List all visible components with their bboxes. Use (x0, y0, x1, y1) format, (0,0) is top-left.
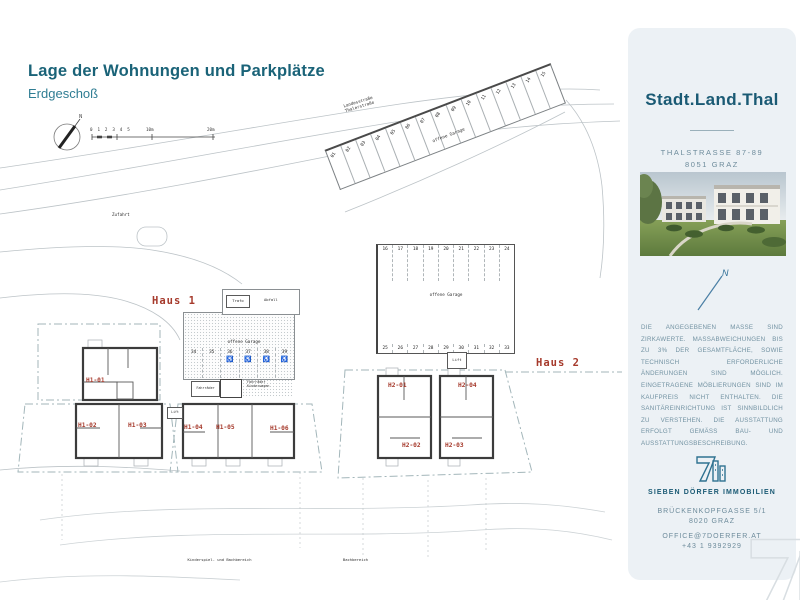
scale-10m: 10m (146, 127, 154, 132)
parking-stall: 18 (408, 245, 423, 281)
zufahrt-label: Zufahrt (112, 213, 130, 218)
parking-stall: 38 ♿ (258, 348, 276, 378)
prams-label: Kinderwagen (247, 385, 269, 389)
parking-stall: 20 (439, 245, 454, 281)
project-address-line2: 8051 GRAZ (628, 160, 796, 169)
unit-label: H1-02 (78, 422, 97, 429)
unit-label: H1-04 (184, 424, 203, 431)
stall-number: 16 (382, 245, 387, 281)
info-sidebar: Stadt.Land.Thal THALSTRASSE 87-89 8051 G… (628, 28, 796, 580)
abfall-label: Abfall (264, 298, 278, 302)
compass-north-label: N (79, 114, 82, 120)
disclaimer-text: DIE ANGEGEBENEN MASSE SIND ZIRKAWERTE. M… (641, 322, 783, 450)
parking-stall: 31 (469, 344, 484, 353)
stall-number: 01 (330, 152, 337, 159)
stall-number: 22 (474, 245, 479, 281)
stall-number: 02 (345, 146, 352, 153)
lift-box: Lift (447, 352, 467, 369)
stall-number: 09 (450, 106, 457, 113)
parcel-ties (62, 472, 486, 558)
stall-number: 21 (459, 245, 464, 281)
open-garage-label: offene Garage (378, 293, 514, 298)
parking-stall: 22 (469, 245, 484, 281)
parking-stall: 21 (454, 245, 469, 281)
wheelchair-icon: ♿ (226, 357, 233, 363)
stall-number: 10 (465, 100, 472, 107)
stall-number: 23 (489, 245, 494, 281)
stall-number: 36 (227, 348, 232, 355)
stall-number: 39 (282, 348, 287, 355)
wheelchair-icon: ♿ (281, 357, 288, 363)
terrain-lines (0, 503, 612, 582)
north-letter: N (722, 268, 729, 278)
parking-stall: 35 (203, 348, 221, 378)
stall-number: 19 (428, 245, 433, 281)
wheelchair-icon: ♿ (263, 357, 270, 363)
stall-number: 05 (390, 129, 397, 136)
project-address-line1: THALSTRASSE 87-89 (628, 148, 796, 157)
stall-number: 08 (435, 112, 442, 119)
parking-stall: 28 (424, 344, 439, 353)
parking-stall: 19 (424, 245, 439, 281)
company-name: SIEBEN DÖRFER IMMOBILIEN (628, 489, 796, 496)
company-logo-icon (694, 448, 730, 484)
stall-number: 11 (480, 94, 487, 101)
stall-number: 12 (495, 89, 502, 96)
unit-label: H1-06 (270, 425, 289, 432)
stall-number: 37 (245, 348, 250, 355)
building-render-image (640, 172, 786, 256)
watermark-logo-icon (742, 512, 800, 600)
stall-number: 28 (428, 344, 433, 353)
parking-stall: 27 (408, 344, 423, 353)
area-label-right: Bachbereich (328, 558, 383, 562)
unit-label: H1-05 (216, 424, 235, 431)
unit-label: H1-01 (86, 377, 105, 384)
page-title: Lage der Wohnungen und Parkplätze (28, 62, 325, 81)
stall-number: 06 (405, 123, 412, 130)
scale-20m: 20m (207, 127, 215, 132)
haus1-stall-row: 34 35 36 ♿ 37 ♿ 38 ♿ 39 ♿ (185, 348, 293, 378)
stall-number: 13 (510, 83, 517, 90)
scale-bar: 0 1 2 3 4 5 10m 20m (90, 127, 215, 140)
stall-number: 38 (264, 348, 269, 355)
scale-ticks: 0 1 2 3 4 5 (90, 127, 131, 132)
lift-box: Lift (167, 407, 183, 419)
unit-label: H2-02 (402, 442, 421, 449)
wheelchair-icon: ♿ (244, 357, 251, 363)
storage-room (220, 379, 242, 398)
open-garage-label: offene Garage (214, 340, 274, 345)
parking-stall: 39 ♿ (276, 348, 293, 378)
stall-number: 14 (525, 77, 532, 84)
brand-name: Stadt.Land.Thal (628, 90, 796, 110)
unit-label: H2-03 (445, 442, 464, 449)
stall-number: 26 (398, 344, 403, 353)
divider (690, 130, 734, 131)
parking-stall: 26 (393, 344, 408, 353)
parking-stall: 16 (378, 245, 393, 281)
stall-number: 32 (489, 344, 494, 353)
brochure-page: N 0 1 2 3 4 5 10m 20m Lage der Wohnungen… (0, 0, 800, 600)
stall-number: 17 (398, 245, 403, 281)
parking-stall: 24 (500, 245, 514, 281)
unit-label: H2-01 (388, 382, 407, 389)
haus2-label: Haus 2 (536, 357, 580, 369)
parking-stall: 25 (378, 344, 393, 353)
haus1-label: Haus 1 (152, 295, 196, 307)
parking-stall: 23 (485, 245, 500, 281)
stall-number: 07 (420, 117, 427, 124)
north-arrow: N (690, 266, 734, 314)
stall-number: 35 (209, 348, 214, 355)
stall-number: 33 (504, 344, 509, 353)
stall-number: 31 (474, 344, 479, 353)
stall-number: 24 (504, 245, 509, 281)
stall-number: 18 (413, 245, 418, 281)
parking-stall: 37 ♿ (240, 348, 258, 378)
garage-top-row: 16 17 18 19 20 21 22 23 24 (378, 245, 514, 281)
garage-bottom-row: 25 26 27 28 29 30 31 32 33 (378, 317, 514, 353)
stall-number: 20 (443, 245, 448, 281)
area-label-left: Kinderspiel- und Bachbereich (162, 558, 277, 562)
stall-number: 03 (360, 140, 367, 147)
stall-number: 15 (540, 71, 547, 78)
parking-stall: 32 (485, 344, 500, 353)
render-illustration (640, 172, 786, 256)
parking-stall: 17 (393, 245, 408, 281)
unit-label: H1-03 (128, 422, 147, 429)
stall-number: 27 (413, 344, 418, 353)
parking-stall: 36 ♿ (221, 348, 239, 378)
unit-label: H2-04 (458, 382, 477, 389)
parking-stall: 34 (185, 348, 203, 378)
stall-number: 25 (382, 344, 387, 353)
trafo-box: Trafo (226, 295, 250, 308)
parking-stall: 33 (500, 344, 514, 353)
page-subtitle: Erdgeschoß (28, 86, 98, 101)
stall-number: 04 (375, 135, 382, 142)
stall-number: 34 (191, 348, 196, 355)
bike-storage-box: Fahrräder (191, 381, 220, 397)
central-garage: 16 17 18 19 20 21 22 23 24 offene Garage… (376, 244, 515, 354)
bike-pram-label: Fahrräder Kinderwagen (247, 381, 269, 389)
compass-rose: N (54, 114, 82, 150)
